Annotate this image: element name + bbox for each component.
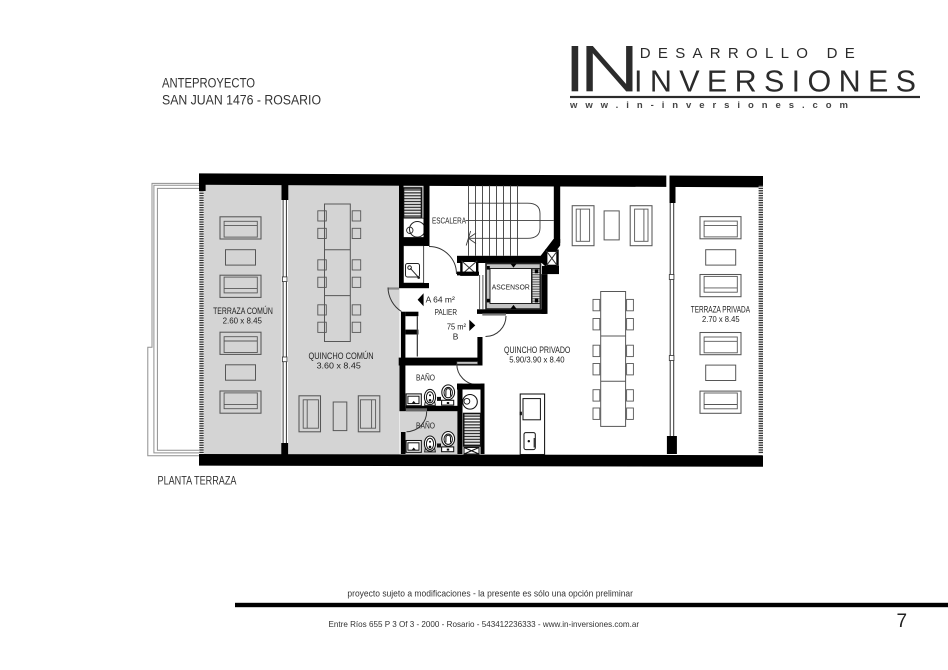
svg-text:ESCALERA: ESCALERA: [432, 215, 466, 225]
svg-text:75 m²: 75 m²: [447, 321, 466, 331]
svg-text:A 64 m²: A 64 m²: [426, 295, 455, 305]
svg-text:QUINCHO PRIVADO: QUINCHO PRIVADO: [504, 345, 570, 355]
svg-text:3.60 x 8.45: 3.60 x 8.45: [317, 360, 361, 370]
svg-text:www.in-inversiones.com: www.in-inversiones.com: [569, 100, 848, 111]
svg-text:INVERSIONES: INVERSIONES: [634, 64, 916, 98]
svg-text:PALIER: PALIER: [435, 308, 458, 317]
svg-text:DESARROLLO DE: DESARROLLO DE: [640, 45, 855, 62]
svg-text:QUINCHO COMÚN: QUINCHO COMÚN: [309, 351, 374, 361]
svg-text:2.70 x 8.45: 2.70 x 8.45: [702, 314, 740, 324]
svg-text:5.90/3.90 x 8.40: 5.90/3.90 x 8.40: [509, 355, 565, 365]
svg-text:Entre Ríos 655 P 3 Of 3 - 2000: Entre Ríos 655 P 3 Of 3 - 2000 - Rosario…: [329, 619, 640, 629]
svg-text:7: 7: [897, 611, 908, 632]
svg-text:BAÑO: BAÑO: [416, 420, 435, 430]
svg-text:PLANTA TERRAZA: PLANTA TERRAZA: [158, 474, 238, 488]
svg-text:BAÑO: BAÑO: [416, 372, 435, 382]
svg-text:TERRAZA COMÚN: TERRAZA COMÚN: [213, 306, 273, 316]
svg-text:B: B: [453, 332, 459, 342]
svg-text:ASCENSOR: ASCENSOR: [492, 282, 530, 291]
svg-text:proyecto sujeto a modificacion: proyecto sujeto a modificaciones - la pr…: [347, 588, 633, 598]
svg-text:SAN JUAN 1476 - ROSARIO: SAN JUAN 1476 - ROSARIO: [162, 92, 321, 107]
svg-text:2.60 x 8.45: 2.60 x 8.45: [223, 315, 263, 325]
svg-text:ANTEPROYECTO: ANTEPROYECTO: [162, 76, 255, 91]
